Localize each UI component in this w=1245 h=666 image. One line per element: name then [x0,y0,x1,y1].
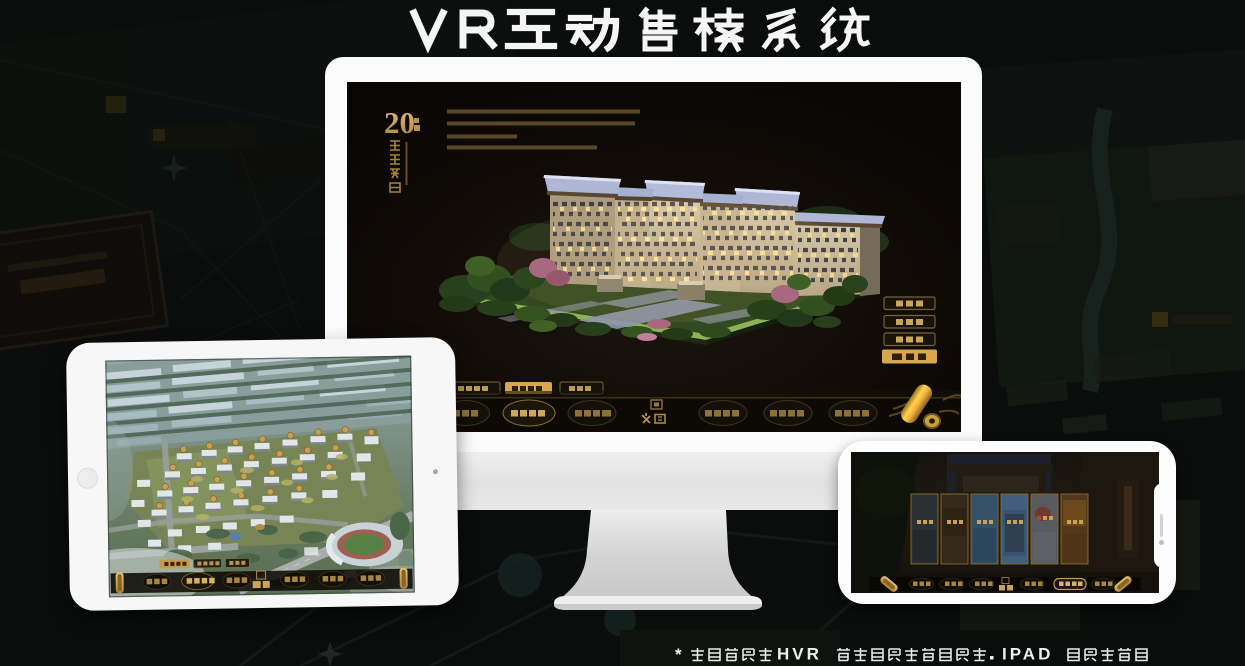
svg-text:*: * [675,645,682,664]
svg-text:HVR: HVR [777,645,822,664]
svg-text:20: 20 [384,105,415,140]
svg-text:IPAD: IPAD [1002,645,1053,664]
